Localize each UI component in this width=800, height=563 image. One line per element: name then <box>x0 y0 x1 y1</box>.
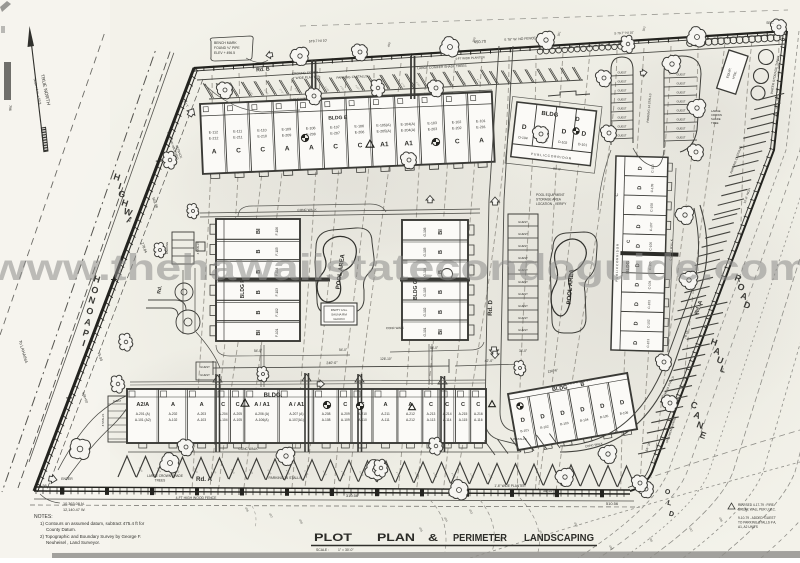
svg-text:E-205(A): E-205(A) <box>377 129 392 134</box>
svg-text:LARGE CROWN SHADE: LARGE CROWN SHADE <box>147 474 183 478</box>
svg-text:42'-0": 42'-0" <box>485 359 494 363</box>
svg-text:C-107: C-107 <box>649 222 653 231</box>
svg-text:F-106: F-106 <box>275 227 279 236</box>
svg-text:A-115: A-115 <box>459 418 468 422</box>
svg-text:E-111: E-111 <box>233 129 242 133</box>
svg-text:GUEST: GUEST <box>618 125 627 129</box>
svg-text:A: A <box>200 402 204 408</box>
svg-text:E-206: E-206 <box>355 130 365 134</box>
svg-text:F-102: F-102 <box>275 308 279 317</box>
svg-text:C-101: C-101 <box>646 339 650 348</box>
svg-text:GUEST: GUEST <box>618 107 627 111</box>
svg-text:C: C <box>445 402 449 408</box>
svg-text:LOCATION - VERIFY: LOCATION - VERIFY <box>536 202 567 206</box>
svg-text:A-102: A-102 <box>169 418 178 422</box>
svg-text:A: A <box>479 137 484 144</box>
svg-text:CONC WALK: CONC WALK <box>297 208 317 212</box>
svg-text:A-203: A-203 <box>197 412 206 416</box>
svg-text:Rd. A: Rd. A <box>196 476 212 483</box>
svg-text:REVISED 4-17-79 : FIRE: REVISED 4-17-79 : FIRE <box>738 503 774 507</box>
svg-text:796: 796 <box>8 105 12 111</box>
svg-text:C-103: C-103 <box>647 300 651 309</box>
svg-text:8 STALLS: 8 STALLS <box>101 414 105 427</box>
svg-text:GUEST: GUEST <box>518 304 528 308</box>
svg-text:BENCH MARK: BENCH MARK <box>214 41 237 45</box>
svg-text:A: A <box>383 402 387 408</box>
svg-text:E-211: E-211 <box>233 135 242 139</box>
svg-text:B: B <box>438 310 444 314</box>
svg-text:A-206 (A): A-206 (A) <box>255 412 269 416</box>
svg-text:D: D <box>637 186 643 190</box>
svg-text:A1: A1 <box>404 140 413 147</box>
svg-text:ELEV + 496.5: ELEV + 496.5 <box>214 51 235 55</box>
svg-text:1) Contours on assumed dat: 1) Contours on assumed datum, subtract 4… <box>40 521 145 526</box>
svg-text:CONC WALK: CONC WALK <box>238 447 258 451</box>
svg-text:TREES: TREES <box>155 479 166 483</box>
svg-text:240'-0": 240'-0" <box>326 361 338 365</box>
svg-text:D: D <box>634 302 640 306</box>
svg-text:A2/A: A2/A <box>136 402 149 408</box>
svg-text:D: D <box>633 341 639 345</box>
svg-text:A-103: A-103 <box>197 418 206 422</box>
svg-text:GUEST: GUEST <box>618 98 627 102</box>
svg-text:A / A1: A / A1 <box>254 402 269 408</box>
svg-text:C-109: C-109 <box>650 183 654 192</box>
svg-text:A / A1: A / A1 <box>289 402 304 408</box>
svg-text:B: B <box>256 290 262 294</box>
svg-text:A-212: A-212 <box>406 418 415 422</box>
svg-text:C: C <box>358 142 363 149</box>
svg-text:A-109: A-109 <box>341 418 350 422</box>
svg-text:NOTES:: NOTES: <box>34 514 53 520</box>
svg-text:1" = 30'-0": 1" = 30'-0" <box>338 548 354 552</box>
svg-text:GUEST: GUEST <box>618 71 627 75</box>
svg-text:E-201: E-201 <box>476 125 486 129</box>
svg-text:GUEST: GUEST <box>677 82 686 86</box>
svg-text:54'-0": 54'-0" <box>430 346 438 350</box>
svg-text:GUEST: GUEST <box>618 116 627 120</box>
svg-text:E-204(A): E-204(A) <box>401 128 416 133</box>
svg-text:8 STALLS: 8 STALLS <box>513 437 526 441</box>
svg-text:510.56: 510.56 <box>606 501 619 506</box>
svg-text:PARTY H'LL: PARTY H'LL <box>331 308 348 312</box>
svg-text:A-205: A-205 <box>233 412 242 416</box>
svg-text:C: C <box>455 138 460 145</box>
svg-text:B: B <box>256 310 262 314</box>
svg-text:&: & <box>428 533 438 544</box>
svg-text:PERIMETER: PERIMETER <box>453 533 508 544</box>
svg-text:GUEST: GUEST <box>518 220 528 224</box>
svg-text:D: D <box>634 321 640 325</box>
svg-text:County Datum.: County Datum. <box>46 527 76 532</box>
svg-text:E-103: E-103 <box>427 121 437 125</box>
svg-text:Rd. B: Rd. B <box>256 67 270 74</box>
svg-text:G-101: G-101 <box>423 327 427 336</box>
svg-text:4-FT HIGH WOOD FENCE: 4-FT HIGH WOOD FENCE <box>176 496 218 500</box>
svg-text:A-116: A-116 <box>474 418 483 422</box>
svg-text:A-202: A-202 <box>169 412 178 416</box>
svg-text:TREE: TREE <box>711 121 719 125</box>
svg-text:BI: BI <box>438 229 444 235</box>
svg-text:A-101 (A2): A-101 (A2) <box>135 418 151 422</box>
svg-text:12,140.47 W.: 12,140.47 W. <box>63 508 85 512</box>
svg-text:BI: BI <box>256 330 262 336</box>
svg-text:GUEST: GUEST <box>677 136 686 140</box>
svg-text:GUEST: GUEST <box>518 232 528 236</box>
svg-text:GUEST: GUEST <box>677 127 686 131</box>
svg-text:E-108: E-108 <box>306 126 316 130</box>
svg-text:GLICKO: GLICKO <box>333 317 345 321</box>
svg-text:A-107(A1): A-107(A1) <box>289 418 304 422</box>
svg-text:E-105(A): E-105(A) <box>376 123 391 128</box>
svg-text:STORAGE AREA: STORAGE AREA <box>536 198 562 202</box>
svg-text:A-207 (A): A-207 (A) <box>289 412 303 416</box>
svg-text:A-210: A-210 <box>358 412 367 416</box>
svg-text:PARKING 26 STALLS: PARKING 26 STALLS <box>268 476 302 480</box>
svg-text:D: D <box>636 224 642 228</box>
svg-text:E-209: E-209 <box>282 133 292 137</box>
svg-text:SEC.: SEC. <box>766 21 774 25</box>
svg-text:BLDG.: BLDG. <box>264 393 283 399</box>
svg-text:F-101: F-101 <box>275 328 279 337</box>
svg-text:A-105: A-105 <box>233 418 242 422</box>
svg-text:D: D <box>638 166 644 170</box>
svg-text:SCALE :: SCALE : <box>316 548 329 552</box>
svg-text:G-102: G-102 <box>423 307 427 316</box>
svg-text:B: B <box>438 290 444 294</box>
svg-text:PLOT: PLOT <box>314 532 352 544</box>
svg-text:E-106: E-106 <box>354 124 364 128</box>
svg-text:450.70: 450.70 <box>474 39 487 45</box>
svg-text:www.thehawaiistatecondoguide.c: www.thehawaiistatecondoguide.com <box>0 247 800 288</box>
svg-text:G-106: G-106 <box>423 227 427 236</box>
svg-text:A: A <box>171 402 175 408</box>
svg-text:ENTER: ENTER <box>61 477 73 481</box>
svg-text:A-209: A-209 <box>341 412 350 416</box>
svg-text:A-211: A-211 <box>381 412 390 416</box>
svg-text:C: C <box>260 146 265 153</box>
svg-text:E-110: E-110 <box>257 128 266 132</box>
svg-text:GUEST: GUEST <box>618 80 627 84</box>
svg-text:2) Topographic and Boundary: 2) Topographic and Boundary Survey by Ge… <box>40 534 141 539</box>
svg-text:CONC WALK: CONC WALK <box>386 326 404 330</box>
svg-text:GUEST: GUEST <box>200 373 210 377</box>
svg-text:10,363.08 N.: 10,363.08 N. <box>63 502 85 506</box>
svg-text:GUEST: GUEST <box>677 100 686 104</box>
svg-text:C: C <box>343 402 347 408</box>
svg-text:A-208: A-208 <box>322 412 331 416</box>
svg-text:GUEST: GUEST <box>200 365 210 369</box>
svg-text:GUEST: GUEST <box>677 73 686 77</box>
svg-text:GUEST: GUEST <box>518 292 528 296</box>
svg-text:E-210: E-210 <box>257 134 267 138</box>
svg-text:Neuheisel , Land Surveyor.: Neuheisel , Land Surveyor. <box>46 540 100 545</box>
svg-text:84'-6": 84'-6" <box>553 167 561 172</box>
svg-text:F-103: F-103 <box>275 288 279 297</box>
svg-text:A-108: A-108 <box>322 418 331 422</box>
svg-text:D: D <box>637 205 643 209</box>
svg-text:E-101: E-101 <box>476 119 486 123</box>
svg-text:GUEST: GUEST <box>618 134 627 138</box>
svg-text:A-111: A-111 <box>381 418 389 422</box>
svg-text:GUEST: GUEST <box>677 118 686 122</box>
svg-text:126'-10": 126'-10" <box>380 357 392 361</box>
svg-text:E-112: E-112 <box>209 130 218 134</box>
svg-text:A-216: A-216 <box>474 412 483 416</box>
svg-text:BI: BI <box>438 329 444 335</box>
svg-text:GUEST: GUEST <box>113 400 122 403</box>
svg-text:A1: A1 <box>380 141 389 148</box>
svg-text:C: C <box>461 402 465 408</box>
svg-text:34'-0": 34'-0" <box>519 349 527 353</box>
svg-text:GUEST: GUEST <box>518 328 528 332</box>
svg-text:A-113: A-113 <box>427 418 436 422</box>
svg-text:C: C <box>429 402 433 408</box>
svg-text:9-10-79 - ADDED 'GUEST': 9-10-79 - ADDED 'GUEST' <box>738 516 776 520</box>
svg-text:C: C <box>236 147 241 154</box>
svg-text:E-203: E-203 <box>428 127 438 131</box>
svg-text:C: C <box>476 402 480 408</box>
svg-text:A: A <box>212 148 217 155</box>
svg-text:A: A <box>309 144 314 151</box>
svg-text:C: C <box>236 402 240 408</box>
svg-text:E-102: E-102 <box>452 120 462 124</box>
svg-text:A-215: A-215 <box>459 412 468 416</box>
svg-text:E-104(A): E-104(A) <box>401 122 416 127</box>
svg-text:A: A <box>285 145 290 152</box>
svg-text:TO PARKING STALLS # A,: TO PARKING STALLS # A, <box>738 521 776 525</box>
svg-text:E-107: E-107 <box>330 125 340 129</box>
svg-text:A-213: A-213 <box>427 412 436 416</box>
svg-text:C: C <box>221 402 225 408</box>
svg-text:A-212: A-212 <box>406 412 415 416</box>
svg-text:C: C <box>333 143 338 150</box>
svg-text:E-202: E-202 <box>452 126 462 130</box>
svg-text:310.56: 310.56 <box>346 493 359 498</box>
svg-text:A-110: A-110 <box>358 418 367 422</box>
svg-text:GUEST: GUEST <box>677 91 686 95</box>
svg-text:LANDSCAPING: LANDSCAPING <box>524 533 594 544</box>
svg-text:BLDG E: BLDG E <box>328 115 348 122</box>
svg-text:SAUNA RM: SAUNA RM <box>331 313 347 317</box>
svg-text:PLAN: PLAN <box>377 532 415 544</box>
svg-text:POOL EQUIPMENT: POOL EQUIPMENT <box>536 193 565 197</box>
svg-text:E-207: E-207 <box>330 131 340 135</box>
svg-text:1'-6" WIDE PLANTER: 1'-6" WIDE PLANTER <box>494 484 526 488</box>
svg-text:BREAK WALL PER U.B.C.: BREAK WALL PER U.B.C. <box>738 508 776 512</box>
svg-text:GUEST: GUEST <box>677 109 686 113</box>
svg-text:FOUND ¾" PIPE: FOUND ¾" PIPE <box>214 46 240 50</box>
svg-text:GUEST: GUEST <box>518 316 528 320</box>
svg-text:A-106(A): A-106(A) <box>255 418 268 422</box>
svg-text:54'-0": 54'-0" <box>254 349 262 353</box>
svg-text:C-108: C-108 <box>650 203 654 212</box>
svg-text:G-103: G-103 <box>423 287 427 296</box>
svg-text:Rd. D: Rd. D <box>488 299 495 316</box>
svg-text:E-109: E-109 <box>281 127 291 131</box>
svg-text:E-212: E-212 <box>209 136 219 140</box>
svg-text:BI: BI <box>256 228 262 234</box>
svg-text:56°55': 56°55' <box>543 489 553 493</box>
svg-text:A-201 (A): A-201 (A) <box>136 412 150 416</box>
svg-text:GUEST: GUEST <box>618 89 627 93</box>
svg-text:A1, A2 UNITS: A1, A2 UNITS <box>738 525 758 529</box>
svg-text:54'-0": 54'-0" <box>339 348 347 352</box>
svg-text:C-102: C-102 <box>647 319 651 328</box>
svg-text:6.56: 6.56 <box>39 484 46 488</box>
